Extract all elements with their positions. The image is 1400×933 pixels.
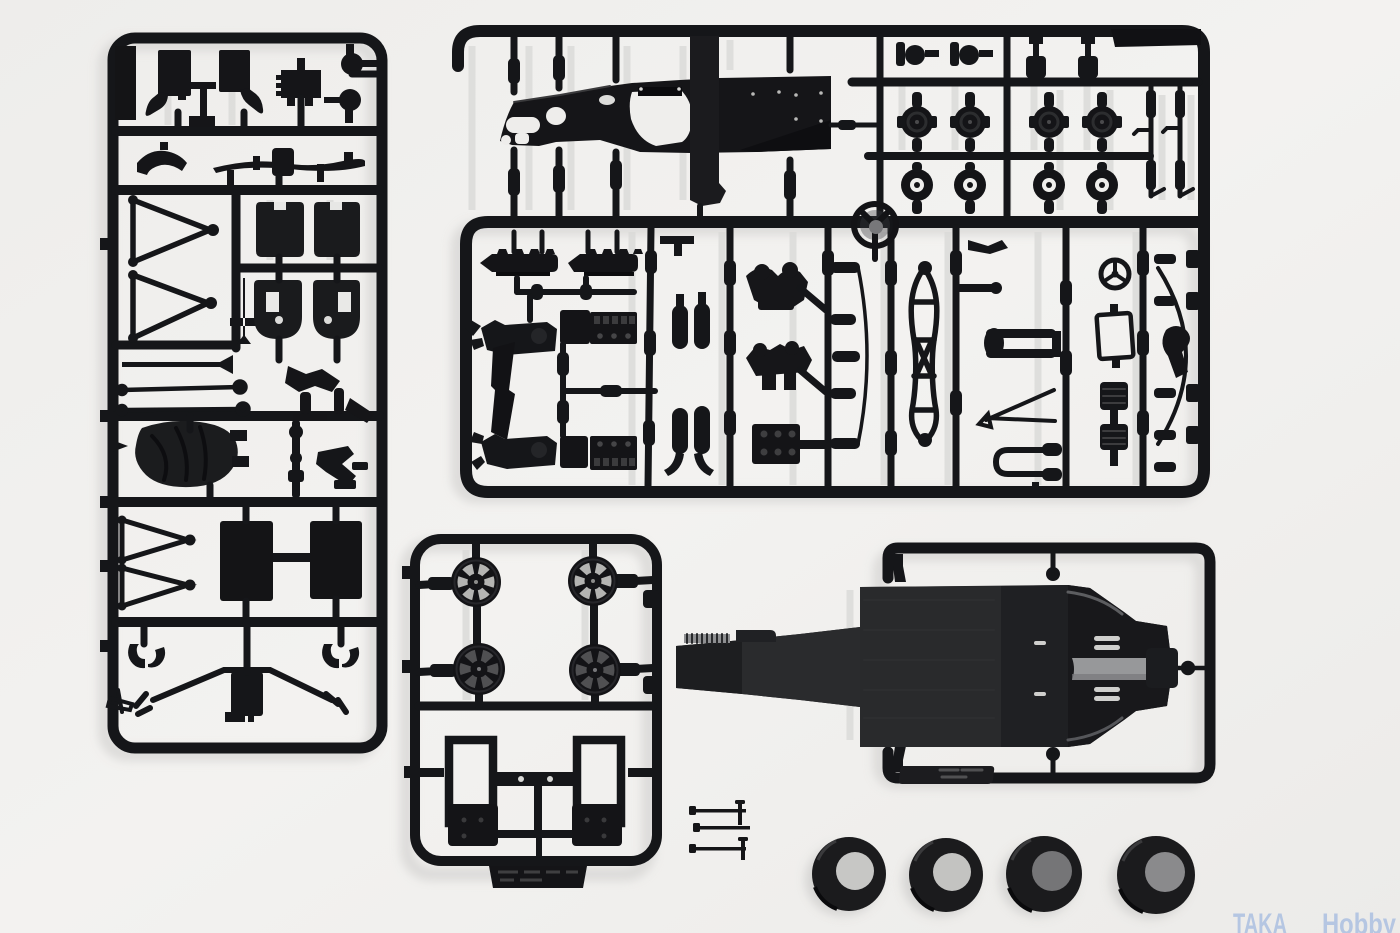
svg-text:TAKA: TAKA	[1233, 908, 1287, 933]
svg-text:Hobby: Hobby	[1322, 908, 1396, 933]
